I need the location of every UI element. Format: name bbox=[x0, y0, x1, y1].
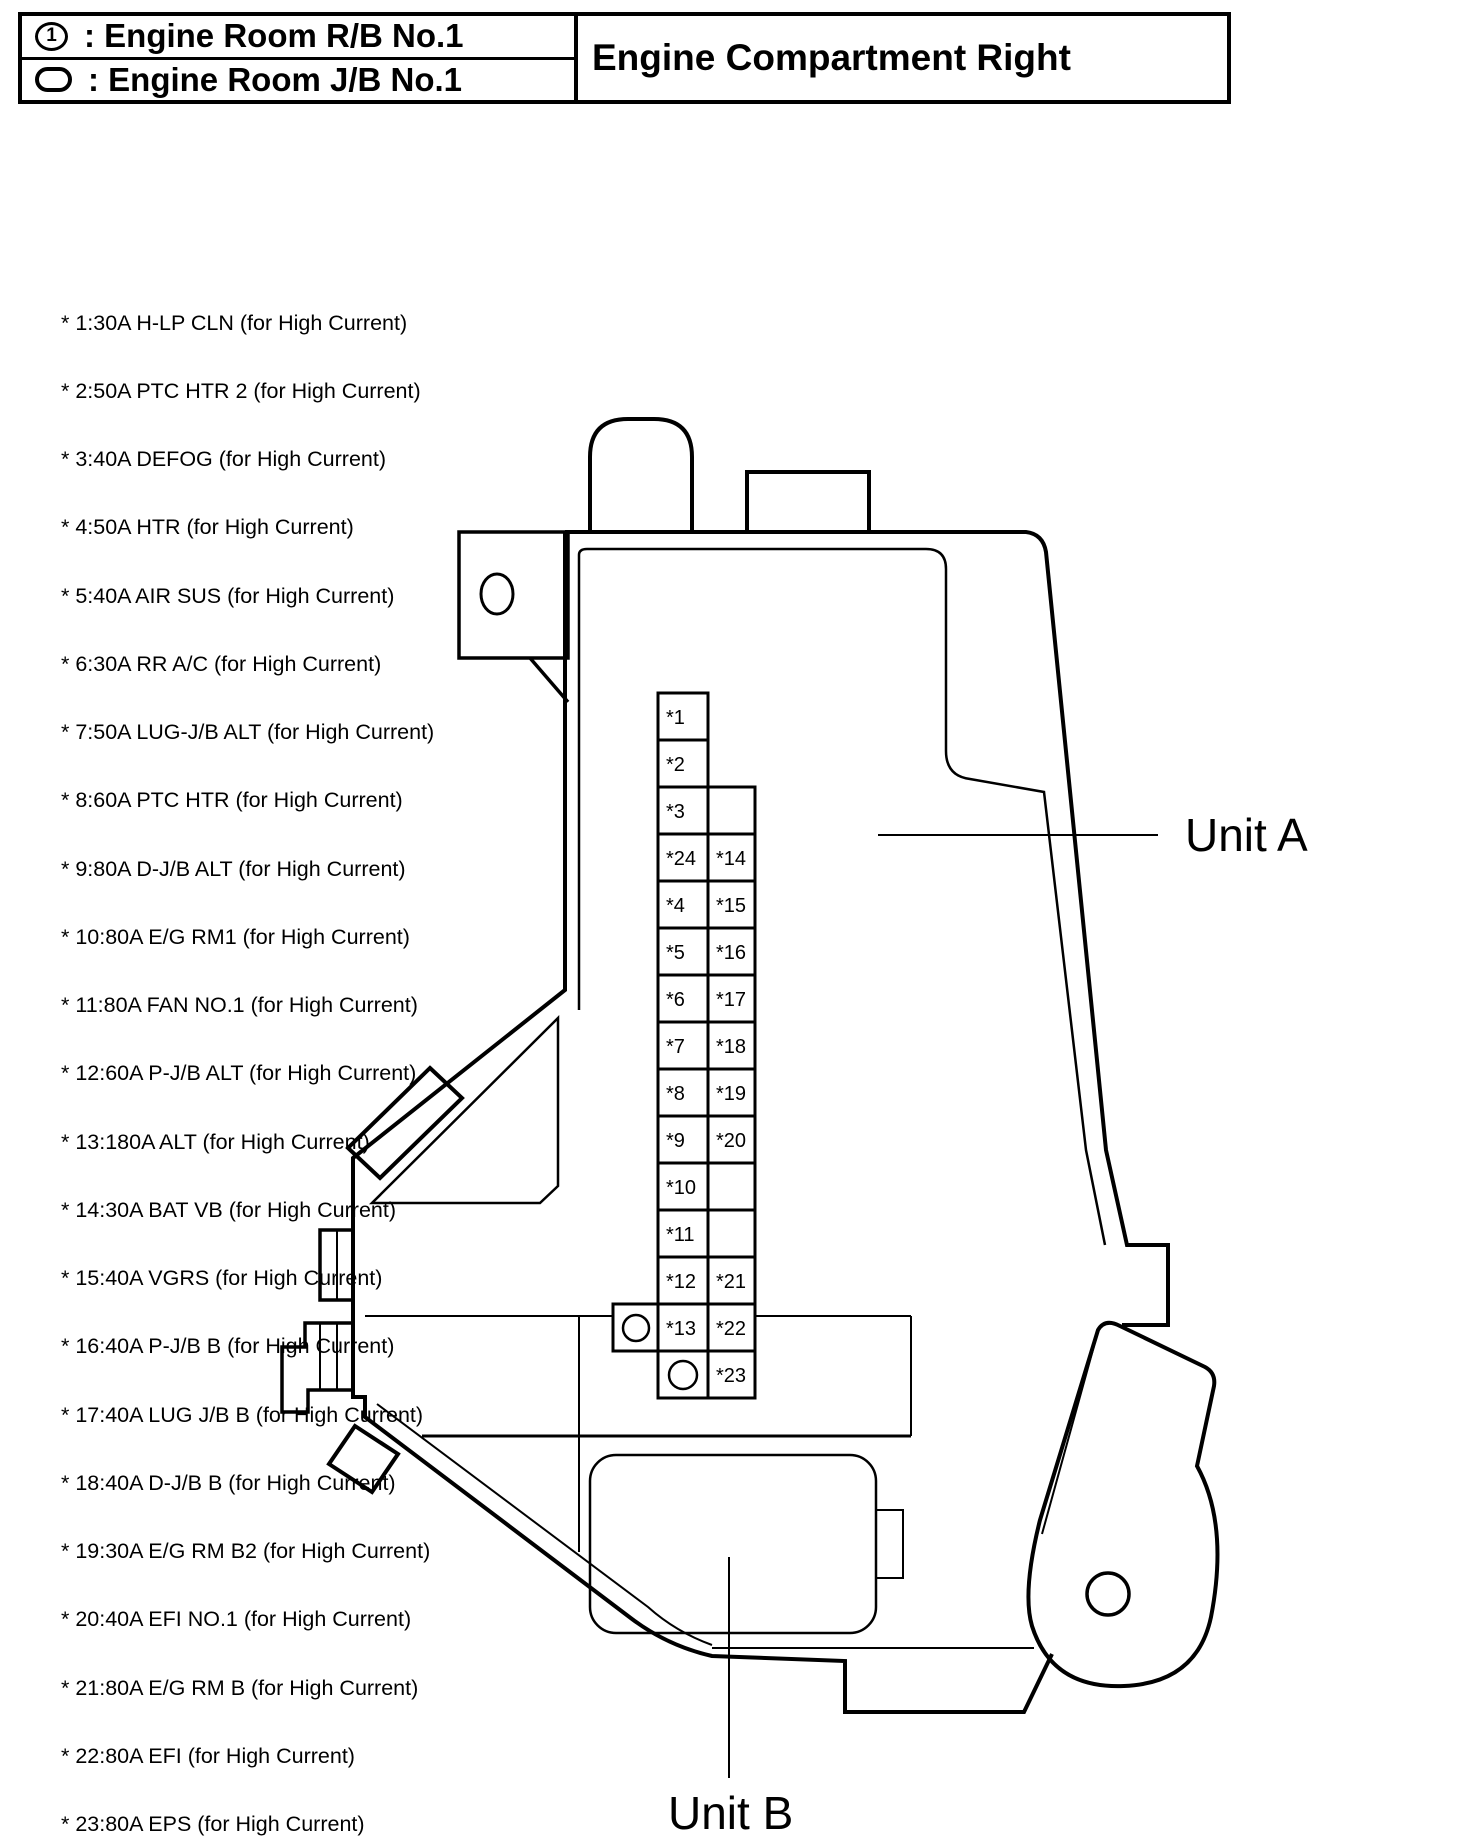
fuse-cell-label: *5 bbox=[666, 942, 685, 964]
cutout-region bbox=[329, 1018, 558, 1492]
fuse-cell-label: *10 bbox=[666, 1177, 696, 1199]
fuse-cell-label: *14 bbox=[716, 848, 746, 870]
fuse-cell-label: *13 bbox=[666, 1318, 696, 1340]
tab-bolt-hole bbox=[481, 574, 513, 614]
fuse-cell-label: *18 bbox=[716, 1036, 746, 1058]
left-tab-lower bbox=[282, 1323, 353, 1412]
fuse-cell-label: *12 bbox=[666, 1271, 696, 1293]
unit-b-outline bbox=[590, 1455, 876, 1633]
outline-top-right bbox=[565, 532, 1168, 1325]
fuse-cell-label: *4 bbox=[666, 895, 685, 917]
fuse-cell-label: *19 bbox=[716, 1083, 746, 1105]
fuse-cell bbox=[708, 1210, 755, 1257]
unit-labels: Unit A Unit B bbox=[668, 809, 1308, 1839]
fuse-cell-label: *11 bbox=[666, 1224, 695, 1246]
bottom-right-foot bbox=[1028, 1323, 1217, 1686]
unit-a-label: Unit A bbox=[1185, 809, 1308, 861]
fuse-cell-label: *24 bbox=[666, 848, 696, 870]
tab-diagonal-line bbox=[530, 658, 568, 702]
top-bumps bbox=[590, 419, 869, 532]
grid-bolt-cell bbox=[613, 1304, 658, 1351]
fuse-cell-label: *9 bbox=[666, 1130, 685, 1152]
unit-b-label: Unit B bbox=[668, 1787, 793, 1839]
left-connector-tabs bbox=[282, 1230, 353, 1412]
fuse-cell-label: *1 bbox=[666, 707, 685, 729]
rect-bump bbox=[747, 472, 869, 532]
fuse-cell-label: *7 bbox=[666, 1036, 685, 1058]
fuse-cell bbox=[658, 1351, 708, 1398]
top-left-tab bbox=[459, 532, 568, 702]
fuse-cell-label: *17 bbox=[716, 989, 746, 1011]
fuse-cell-label: *6 bbox=[666, 989, 685, 1011]
foot-outline bbox=[1028, 1323, 1217, 1686]
inner-bottom-diagonal bbox=[377, 1404, 712, 1645]
fuse-cell-label: *15 bbox=[716, 895, 746, 917]
fuse-cell-label: *3 bbox=[666, 801, 685, 823]
fuse-cell-label: *16 bbox=[716, 942, 746, 964]
fusebox-diagram: *1 *2 *3 *24 *4 *5 *6 *7 *8 *9 *10 *11 *… bbox=[0, 0, 1472, 1840]
fuse-cell-label: *23 bbox=[716, 1365, 746, 1387]
fuse-grid: *1 *2 *3 *24 *4 *5 *6 *7 *8 *9 *10 *11 *… bbox=[613, 693, 755, 1398]
unit-b-side-tab bbox=[876, 1510, 903, 1578]
slant-bump-upper bbox=[348, 1068, 462, 1178]
fuse-cell bbox=[708, 1163, 755, 1210]
fuse-cell-label: *21 bbox=[716, 1271, 746, 1293]
unit-b-box bbox=[590, 1455, 903, 1633]
dome-bump bbox=[590, 419, 692, 532]
triangle-cutout bbox=[372, 1018, 558, 1203]
page: 1 : Engine Room R/B No.1 : Engine Room J… bbox=[0, 0, 1472, 1840]
fuse-cell-label: *8 bbox=[666, 1083, 685, 1105]
fuse-cell-label: *2 bbox=[666, 754, 685, 776]
fuse-cell-label: *22 bbox=[716, 1318, 746, 1340]
fuse-cell bbox=[708, 787, 755, 834]
fuse-cell-label: *20 bbox=[716, 1130, 746, 1152]
